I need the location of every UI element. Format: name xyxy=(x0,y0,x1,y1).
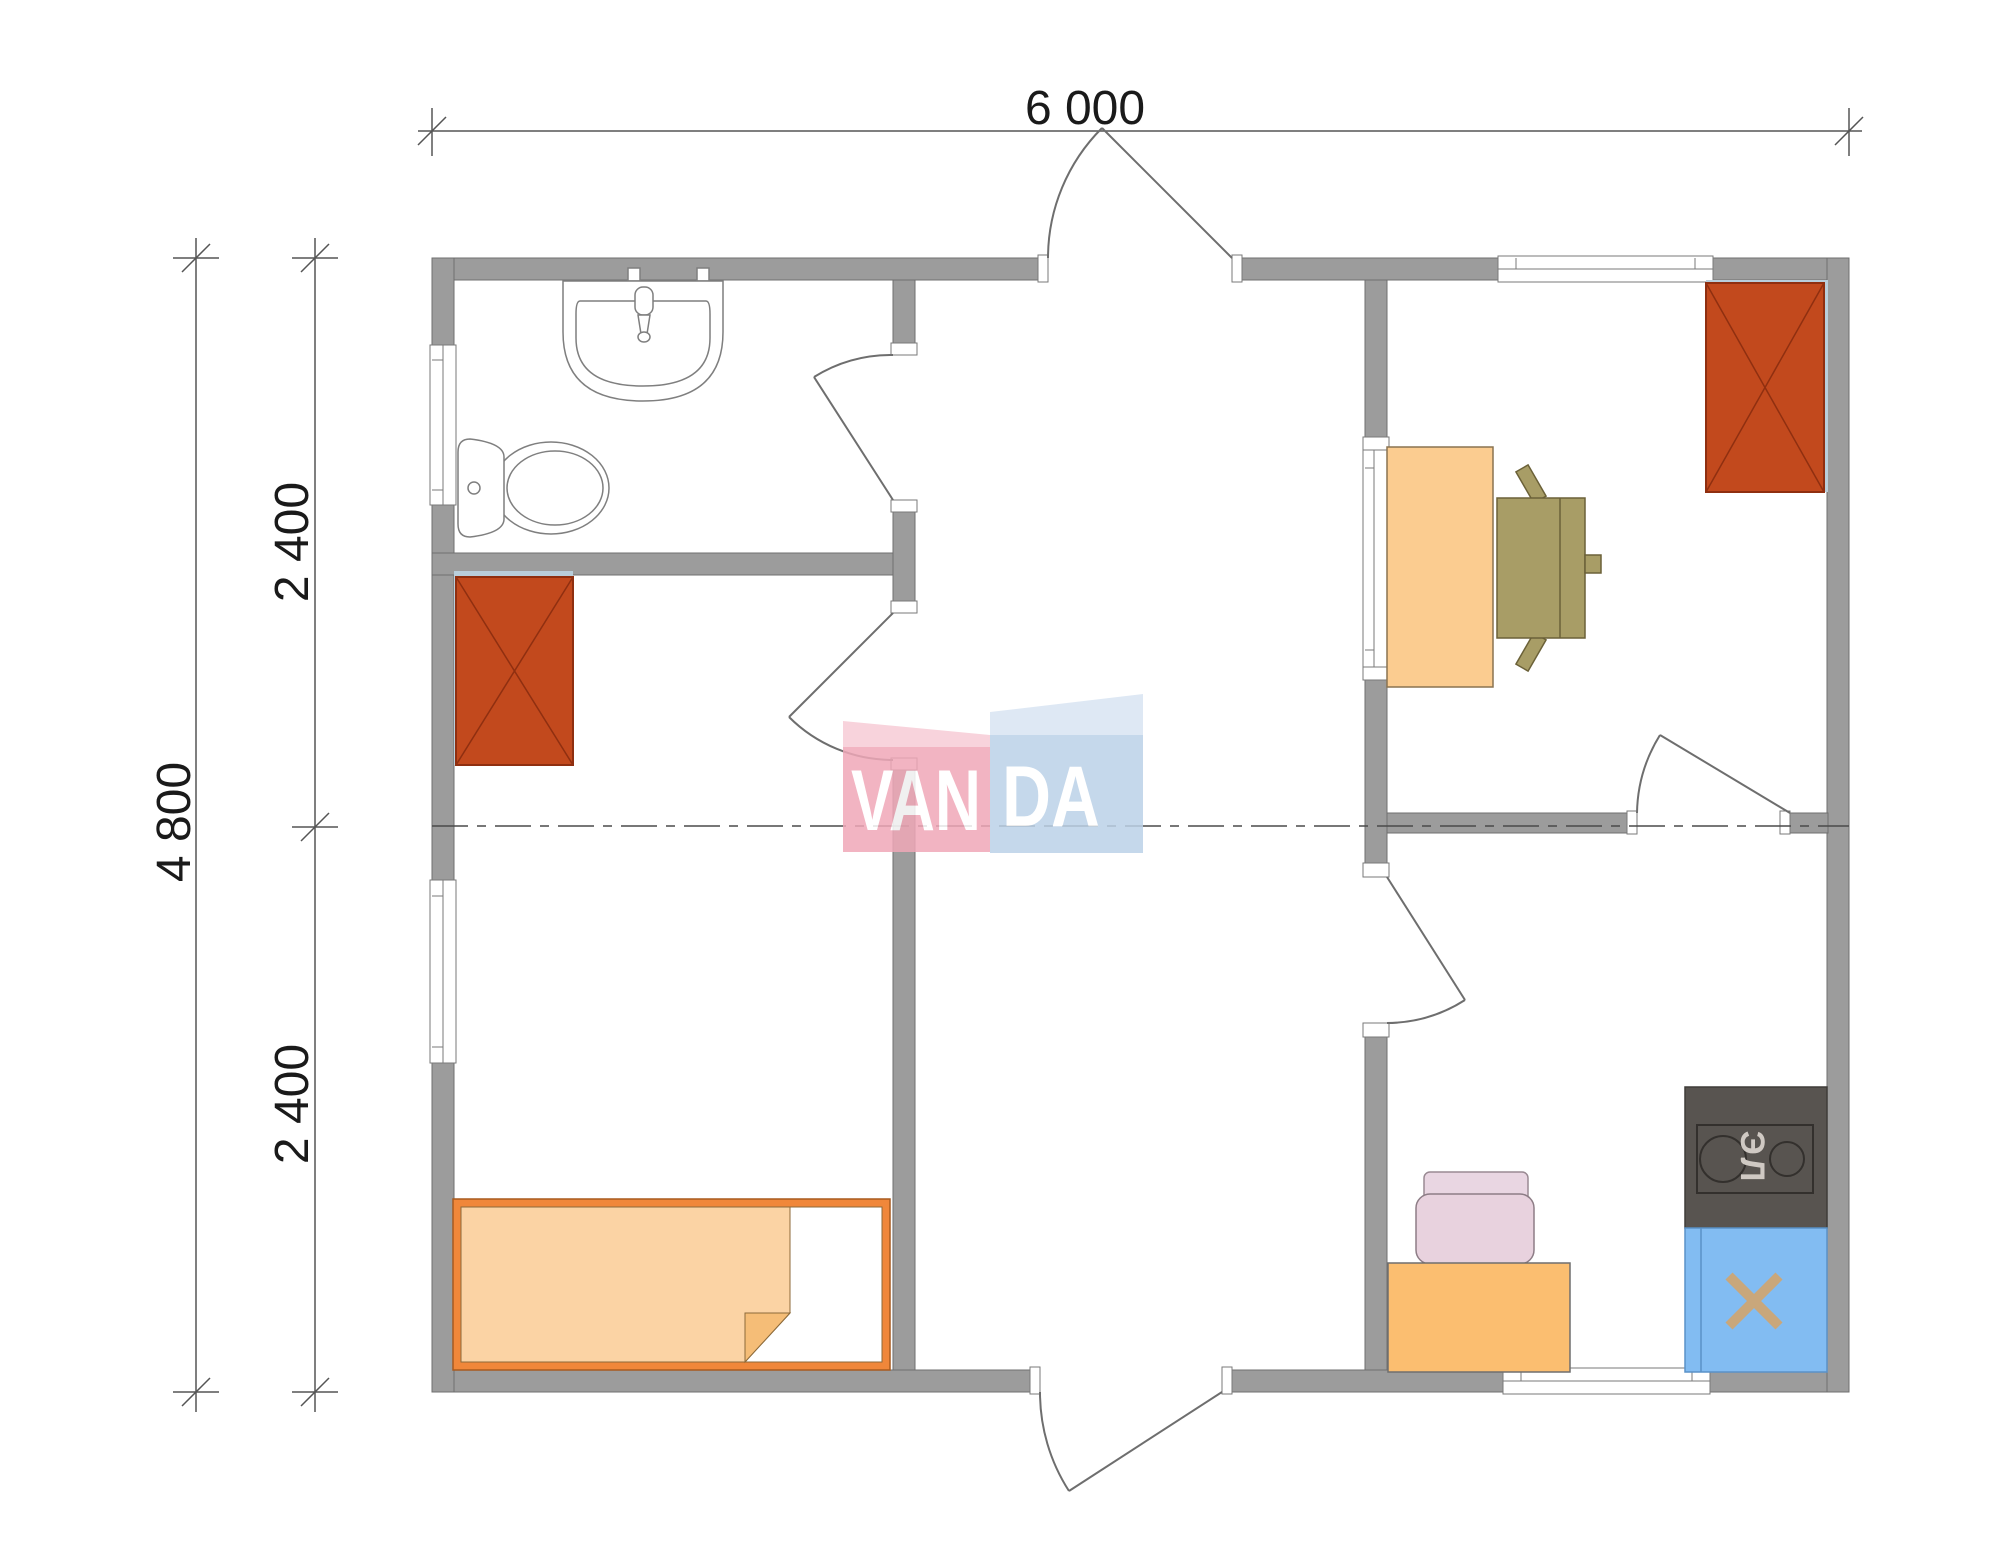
jamb xyxy=(1030,1367,1040,1394)
electric-stove-icon: ЭЛ xyxy=(1685,1087,1827,1228)
dim-label-total-height: 4 800 xyxy=(148,762,201,882)
kitchen-table-icon xyxy=(1388,1263,1570,1372)
stove-label: ЭЛ xyxy=(1733,1131,1771,1186)
jamb xyxy=(891,343,917,355)
wash-basin-icon xyxy=(563,268,723,401)
jamb xyxy=(891,601,917,613)
office-chair-icon xyxy=(1497,465,1601,671)
wall-right xyxy=(1827,258,1849,1392)
door-office xyxy=(1637,735,1790,813)
jamb xyxy=(1627,811,1637,834)
wall-top-left-segment xyxy=(432,258,1038,280)
jamb xyxy=(1363,863,1389,877)
wall-office-left-mid xyxy=(1365,680,1387,863)
door-main-entrance-top xyxy=(1048,128,1232,258)
toilet-icon xyxy=(458,439,609,537)
window-bedroom-left xyxy=(430,880,456,1063)
door-bathroom xyxy=(814,355,893,500)
floor-plan-canvas: 6 000 4 800 2 400 2 400 xyxy=(0,0,2000,1563)
door-entrance-bottom xyxy=(1040,1392,1222,1491)
wall-bathroom-right-upper xyxy=(893,280,915,343)
wall-office-left-upper xyxy=(1365,280,1387,437)
wall-office-bottom xyxy=(1387,813,1627,833)
desk-icon xyxy=(1387,447,1493,687)
floor-plan-drawing: 6 000 4 800 2 400 2 400 xyxy=(0,0,2000,1563)
wardrobe-bedroom xyxy=(454,571,573,765)
wall-left-upper xyxy=(432,258,454,345)
jamb xyxy=(891,500,917,512)
dim-label-total-width: 6 000 xyxy=(1025,82,1145,135)
wall-bathroom-right-lower xyxy=(893,512,915,602)
dimension-labels: 6 000 4 800 2 400 2 400 xyxy=(148,82,1145,1164)
wardrobe-office xyxy=(1706,280,1828,492)
kitchen-chair-icon xyxy=(1416,1172,1534,1264)
jamb xyxy=(1363,667,1389,680)
wall-kitchen-left-lower xyxy=(1365,1037,1387,1370)
wall-office-bottom-stub xyxy=(1790,813,1828,833)
watermark-text-blue: DA xyxy=(1002,749,1100,845)
wall-bottom-left-segment xyxy=(432,1370,1030,1392)
window-office-top xyxy=(1498,256,1713,282)
window-office-interior xyxy=(1363,450,1389,667)
jamb xyxy=(1780,811,1790,834)
window-bathroom-left xyxy=(430,345,456,505)
jamb xyxy=(1232,255,1242,282)
jamb xyxy=(1038,255,1048,282)
jamb xyxy=(1363,1023,1389,1037)
dim-label-segment-top: 2 400 xyxy=(266,482,319,602)
jamb xyxy=(1222,1367,1232,1394)
wall-bedroom-right xyxy=(893,770,915,1370)
single-bed-icon xyxy=(453,1199,890,1370)
vanda-watermark: VAN DA xyxy=(843,694,1143,853)
watermark-text-pink: VAN xyxy=(851,753,981,849)
door-kitchen xyxy=(1387,877,1465,1023)
wall-top-mid-segment xyxy=(1242,258,1498,280)
wall-bottom-mid-segment xyxy=(1232,1370,1503,1392)
jamb xyxy=(1363,437,1389,450)
dim-label-segment-bottom: 2 400 xyxy=(266,1044,319,1164)
wall-left-lower xyxy=(432,1063,454,1392)
kitchen-sink-icon xyxy=(1685,1228,1827,1372)
